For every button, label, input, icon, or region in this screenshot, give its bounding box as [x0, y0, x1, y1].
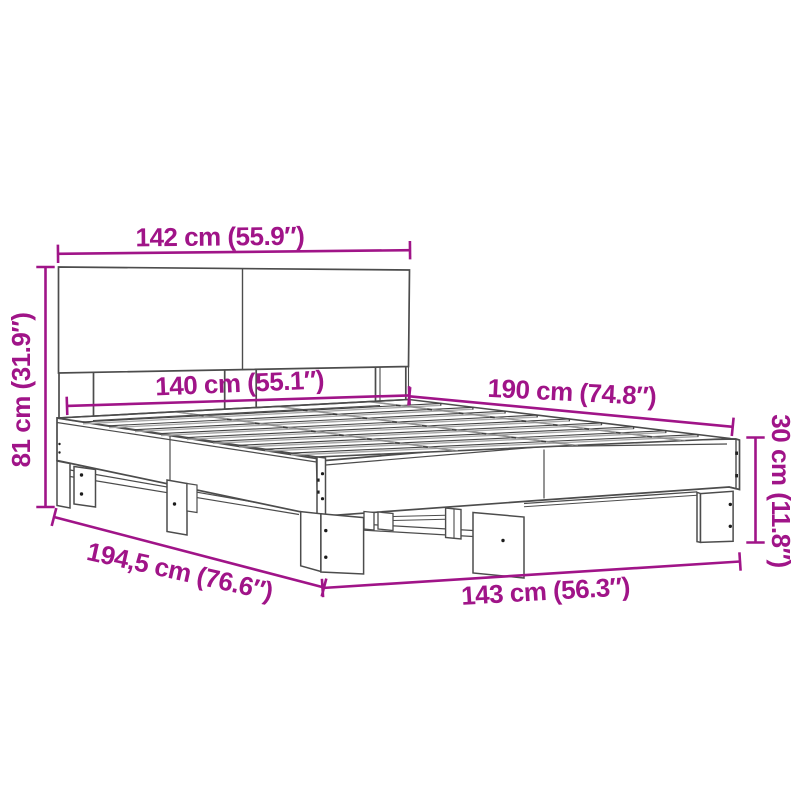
- svg-text:142 cm (55.9″): 142 cm (55.9″): [135, 221, 304, 253]
- svg-text:30 cm (11.8″): 30 cm (11.8″): [766, 414, 796, 567]
- svg-text:81 cm (31.9″): 81 cm (31.9″): [6, 313, 36, 468]
